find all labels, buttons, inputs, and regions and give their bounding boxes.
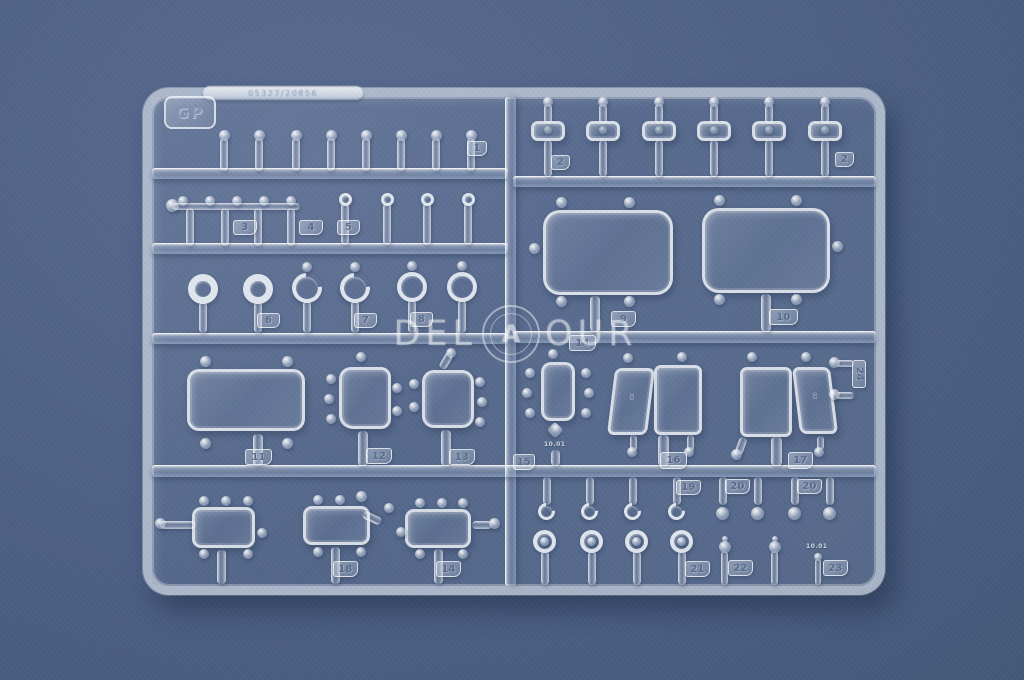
sprue-gate-ball (556, 197, 567, 208)
lamp-ball (788, 507, 801, 520)
fitting-ball (259, 196, 269, 206)
photo-background: 05327/20856 GP (0, 0, 1024, 680)
sprue-gate-ball (200, 438, 211, 449)
light-center (587, 537, 596, 546)
lens-ring (188, 274, 218, 304)
sprue-gate-ball (200, 356, 211, 367)
window-stem (551, 450, 560, 466)
pin-stem (362, 138, 370, 171)
hatch-14 (405, 509, 471, 548)
divider-left-3 (152, 333, 508, 344)
sprue-gate-ball (313, 495, 323, 505)
light-stem (771, 551, 778, 585)
side-tab (584, 388, 594, 398)
sprue-gate-ball (814, 447, 824, 457)
fitting-ball (286, 196, 296, 206)
lamp-stem (586, 477, 594, 505)
side-tab (392, 383, 402, 393)
light-stem (815, 559, 821, 585)
pin-stem (255, 138, 263, 171)
windscreen-17-left (740, 367, 792, 437)
sprue-gate-ball (556, 296, 567, 307)
block-detail (710, 126, 718, 134)
light-center (677, 537, 686, 546)
lamp-stem (629, 477, 637, 505)
sprue-gate-ball (791, 294, 802, 305)
part-number-tag: 14 (569, 335, 596, 351)
lens-notched-ring (397, 272, 427, 302)
side-tab (326, 374, 336, 384)
part-number-tag: 5 (337, 220, 360, 235)
lamp-stem (754, 477, 762, 505)
fitting-ball (232, 196, 242, 206)
part-number-tag: 16 (660, 452, 687, 469)
sprue-gate-ball (199, 549, 209, 559)
fitting-leg (464, 203, 472, 245)
fitting-ball (178, 196, 188, 206)
part-number-tag: 17 (788, 452, 813, 469)
part-number-tag: 18 (333, 561, 358, 577)
fitting-leg (186, 208, 194, 246)
sprue-gate-ball (714, 195, 725, 206)
divider-right-1 (513, 176, 876, 187)
sprue-gate-ball (714, 294, 725, 305)
mold-mark: 10.01 (806, 543, 827, 550)
sprue-gate-ball (548, 349, 558, 359)
pin-stem (327, 138, 335, 171)
light-stem (633, 551, 641, 585)
side-tab (324, 394, 334, 404)
block-detail (544, 126, 552, 134)
sprue-gate-ball (356, 491, 367, 502)
lens-ring (243, 274, 273, 304)
part-number-tag: 23 (823, 560, 848, 576)
part-number-tag: 7 (354, 313, 377, 328)
part-number-tag: 2 (835, 152, 854, 167)
light-stem (721, 551, 728, 585)
fitting-leg (383, 203, 391, 245)
sprue-gate-ball (677, 352, 687, 362)
part-number-tag: 9 (611, 311, 636, 327)
lens-nub (302, 262, 312, 272)
sprue-gate-ball (627, 447, 637, 457)
block-stem (655, 140, 663, 177)
sprue-gate-ball (624, 296, 635, 307)
block-detail (599, 126, 607, 134)
arm-stem (160, 521, 196, 529)
pin-stem (292, 138, 300, 171)
part-number-tag: 14 (436, 561, 461, 577)
mold-code-strip: 05327/20856 (203, 86, 363, 100)
side-tab (477, 397, 487, 407)
sprue-gate-ball (335, 495, 345, 505)
window-13 (422, 370, 474, 428)
sprue-gate-ball (356, 352, 366, 362)
side-tab (396, 527, 406, 537)
sprue-gate-ball (199, 496, 209, 506)
lamp-ball (751, 507, 764, 520)
sprue-gate-ball (221, 496, 231, 506)
side-tab (529, 243, 540, 254)
divider-left-2 (152, 243, 508, 254)
part-number-tag: 15 (513, 454, 535, 470)
part-number-tag: 11 (245, 449, 272, 465)
lens-stem (199, 302, 207, 333)
light-stem (541, 551, 549, 585)
sprue-corner-label: GP (164, 96, 216, 129)
sprue-gate-ball (356, 547, 366, 557)
lamp-stem (826, 477, 834, 505)
lens-nub (350, 262, 360, 272)
pane-mark: 8 (629, 393, 635, 403)
windscreen-9 (543, 210, 673, 295)
light-center (540, 537, 549, 546)
windscreen-16-right (654, 365, 702, 435)
side-tab (522, 388, 532, 398)
window-12 (339, 367, 391, 429)
fitting-leg (221, 208, 229, 246)
part-number-tag: 3 (233, 220, 257, 235)
side-tab (475, 377, 485, 387)
sprue-gate-ball (243, 549, 253, 559)
pin-stem (220, 138, 228, 171)
window-stem (771, 437, 782, 466)
sprue-gate-ball (731, 449, 742, 460)
part-number-tag: 8 (410, 312, 433, 327)
side-tab (475, 417, 485, 427)
part-number-tag: 21 (685, 561, 710, 577)
part-number-tag: 10 (769, 309, 798, 325)
sprue-gate-ball (313, 547, 323, 557)
arm-ball (489, 518, 500, 529)
part-number-tag: 19 (676, 480, 701, 495)
sprue-gate-ball (282, 356, 293, 367)
block-detail (821, 126, 829, 134)
sprue-gate-ball (801, 352, 811, 362)
side-tab (409, 379, 419, 389)
pane-mark: 8 (812, 392, 818, 402)
side-tab (409, 402, 419, 412)
part-number-tag: 20 (797, 479, 822, 494)
pin-stem (432, 138, 440, 171)
fitting-ball (205, 196, 215, 206)
hatch-a (192, 507, 255, 548)
side-tab (392, 406, 402, 416)
block-stem (710, 140, 718, 177)
window-11 (187, 369, 305, 431)
lens-stem (458, 300, 466, 333)
bracket-arm (836, 392, 854, 399)
block-detail (765, 126, 773, 134)
side-tab (832, 241, 843, 252)
part-number-tag: 24 (852, 360, 866, 388)
part-number-tag: 13 (449, 449, 475, 465)
windscreen-10 (702, 208, 830, 293)
lens-stem (303, 301, 311, 333)
side-tab (581, 408, 591, 418)
sprue-gate-ball (437, 498, 447, 508)
block-stem (765, 140, 773, 177)
block-stem (821, 140, 829, 177)
window-stem (590, 296, 600, 332)
lens-nub (457, 261, 467, 271)
sprue-gate-ball (415, 549, 425, 559)
lamp-stem (543, 477, 551, 505)
light-stem (588, 551, 596, 585)
part-number-tag: 20 (725, 479, 750, 494)
divider-right-2 (513, 331, 876, 343)
sprue-gate-ball (624, 197, 635, 208)
part-number-tag: 12 (366, 448, 392, 464)
lamp-ball (716, 507, 729, 520)
part-number-tag: 22 (728, 560, 753, 576)
fitting-leg (423, 203, 431, 245)
part-number-tag: 2 (551, 155, 570, 170)
window-15 (541, 362, 575, 421)
mold-mark: 10.01 (544, 441, 565, 448)
sprue-gate-ball (282, 438, 293, 449)
part-number-tag: 1 (467, 141, 487, 156)
lens-notched-ring (447, 272, 477, 302)
block-stem (599, 140, 607, 177)
sprue-gate-ball (458, 549, 468, 559)
sprue-gate-ball (623, 353, 633, 363)
side-tab (326, 414, 336, 424)
light-center (632, 537, 641, 546)
lamp-ball (823, 507, 836, 520)
side-tab (257, 528, 267, 538)
part-number-tag: 6 (257, 313, 280, 328)
lens-nub (407, 261, 417, 271)
side-tab (581, 368, 591, 378)
sprue-gate-ball (243, 496, 253, 506)
hatch-stem (217, 550, 226, 584)
sprue-gate-ball (458, 498, 468, 508)
sprue-gate-ball (791, 195, 802, 206)
hatch-18 (303, 506, 370, 545)
arm-ball (384, 503, 394, 513)
side-tab (525, 408, 535, 418)
block-detail (655, 126, 663, 134)
sprue-gate-ball (747, 352, 757, 362)
pin-stem (397, 138, 405, 171)
side-tab (525, 368, 535, 378)
sprue-gate-ball (415, 498, 425, 508)
part-number-tag: 4 (299, 220, 323, 235)
fitting-leg (287, 208, 295, 246)
